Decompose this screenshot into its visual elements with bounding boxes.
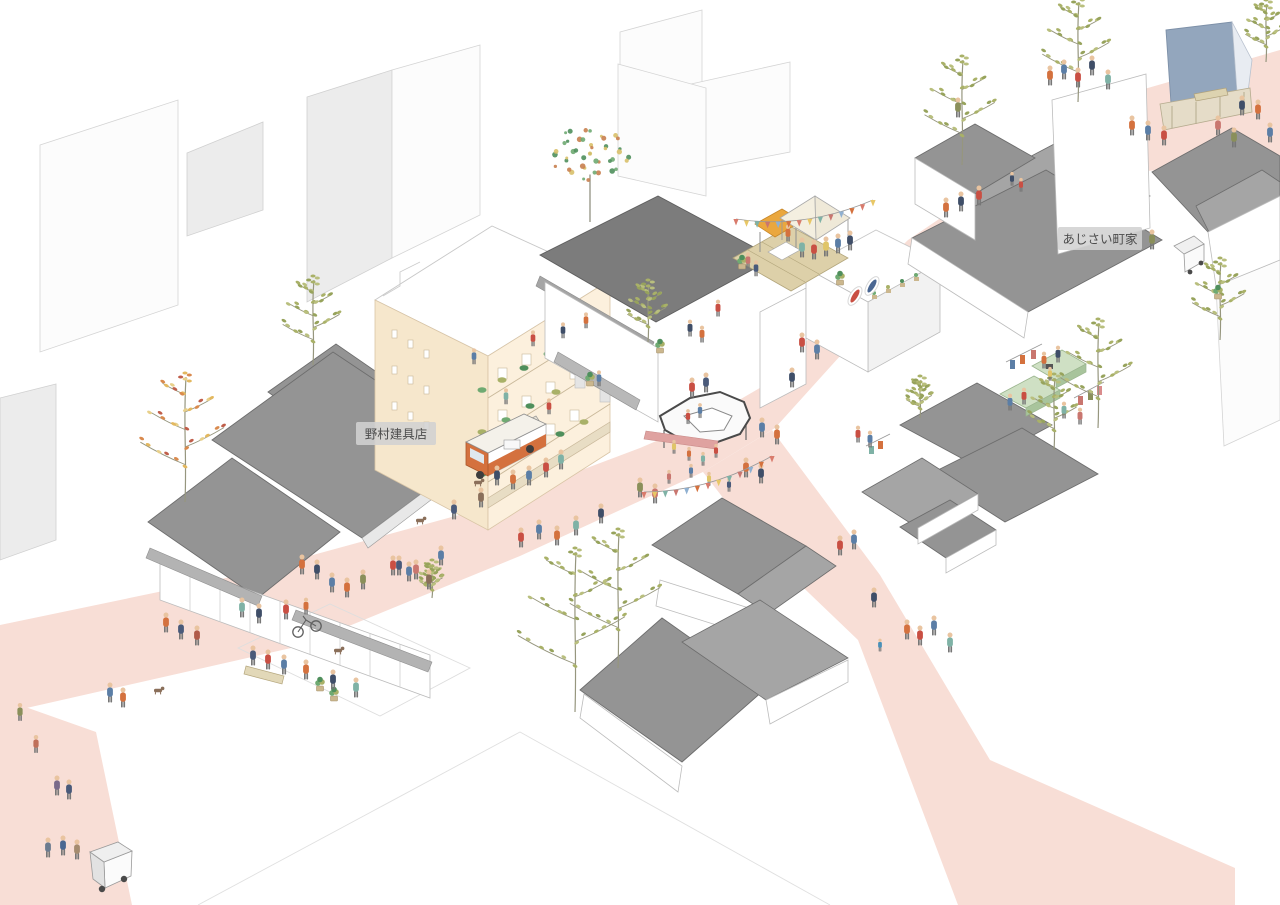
- person: [1089, 56, 1095, 76]
- bunting-flag: [695, 486, 700, 493]
- bunting-flag: [684, 488, 689, 495]
- potted-plant: [655, 339, 665, 353]
- bunting-flag: [860, 204, 865, 211]
- dog: [154, 687, 164, 695]
- person: [303, 660, 309, 680]
- illustration-canvas: BLDG: [0, 0, 1280, 905]
- serving-window: [504, 440, 520, 449]
- bunting-flag: [849, 208, 854, 215]
- bunting-flag: [744, 220, 749, 227]
- bunting-flag: [705, 483, 710, 490]
- person: [1047, 66, 1053, 86]
- wheel: [121, 876, 127, 882]
- bunting-flag: [663, 491, 668, 498]
- person: [856, 426, 861, 443]
- person: [689, 378, 695, 398]
- blue-building: [1160, 22, 1252, 130]
- bunting-flag: [870, 200, 875, 207]
- person: [598, 504, 604, 524]
- person: [700, 326, 705, 343]
- person: [931, 616, 937, 636]
- label-ajisai-machiya: あじさい町家: [1058, 227, 1142, 250]
- person: [107, 683, 113, 703]
- person: [573, 516, 579, 536]
- wheel: [1199, 261, 1204, 266]
- laundry-line: [1074, 382, 1104, 405]
- person: [716, 300, 721, 317]
- person: [1061, 60, 1067, 80]
- faint-tower: [392, 45, 480, 258]
- person: [754, 260, 759, 276]
- label-text: あじさい町家: [1062, 232, 1138, 247]
- potted-plant: [315, 677, 325, 691]
- bench: [244, 666, 284, 684]
- person: [703, 373, 709, 393]
- person: [1062, 402, 1067, 419]
- label-nomura-shop: 野村建具店: [356, 422, 436, 445]
- label-text: 野村建具店: [365, 427, 428, 442]
- faint-tower: [40, 100, 178, 352]
- person: [120, 688, 126, 708]
- faint-tower: [307, 70, 392, 302]
- wheel: [1188, 270, 1193, 275]
- faint-tower-face: [187, 122, 263, 236]
- lot-line: [198, 732, 830, 905]
- townscape-axonometric: BLDG: [0, 0, 1280, 905]
- person: [330, 670, 336, 690]
- person: [250, 646, 256, 666]
- wheel: [526, 445, 534, 453]
- person: [353, 678, 359, 698]
- person: [265, 650, 271, 670]
- dog: [416, 517, 426, 525]
- person: [955, 98, 961, 118]
- bunting-flag: [673, 490, 678, 497]
- faint-wall: [1216, 260, 1280, 446]
- person: [947, 633, 953, 653]
- wheel: [99, 886, 105, 892]
- hand-cart: [1174, 236, 1204, 274]
- bunting-flag: [733, 219, 738, 226]
- person: [554, 526, 560, 546]
- person: [1078, 408, 1083, 425]
- person: [281, 655, 287, 675]
- person: [688, 320, 693, 337]
- wheel: [476, 471, 484, 479]
- faint-wall: [0, 384, 56, 560]
